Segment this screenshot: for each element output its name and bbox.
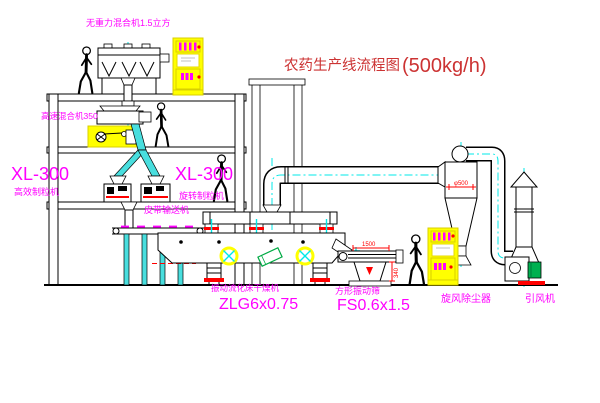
person-figure <box>79 47 92 93</box>
spring-mount <box>310 278 330 282</box>
cyclone-inlet <box>438 162 445 187</box>
fan-motor <box>528 262 541 278</box>
spring-mount <box>204 278 224 282</box>
label-high-speed-mixer: 高速混合机350 <box>41 111 98 121</box>
label-dryer-name: 振动流化床干燥机 <box>211 283 280 293</box>
label-cyclone: 旋风除尘器 <box>441 292 491 305</box>
indicator-dot <box>451 234 454 237</box>
label-sieve-model: FS0.6x1.5 <box>337 297 410 314</box>
person-figure <box>410 235 424 284</box>
control-cabinet-top <box>173 38 203 95</box>
cyclone-outlet-elbow <box>452 146 468 162</box>
dryer-hood <box>203 212 337 224</box>
fan-base <box>518 281 545 285</box>
page-title: 农药生产线流程图 <box>284 57 400 74</box>
granulator-right-drawing <box>141 184 170 202</box>
control-cabinet-right <box>428 228 458 285</box>
dim-cyclone-diameter: φ500 <box>454 181 469 187</box>
label-sieve-name: 方形振动筛 <box>335 285 380 296</box>
label-belt-conveyor: 皮带输送机 <box>144 204 189 215</box>
exhaust-stack-drawing <box>509 172 539 263</box>
vibrating-sieve-drawing <box>338 245 403 286</box>
granulator-left-drawing <box>104 184 131 202</box>
cabinet-panel <box>432 244 454 256</box>
dim-sieve-length: 1500 <box>362 242 376 248</box>
person-figure <box>156 103 169 146</box>
dim-sieve-height: 340 <box>394 267 400 278</box>
diagram-svg: 农药生产线流程图 (500kg/h) 无重力混合机1.5立方 高速混合机350 … <box>0 0 600 403</box>
stack-cap <box>511 172 537 187</box>
gravity-mixer-drawing <box>98 44 169 101</box>
induced-draft-fan-drawing <box>505 257 545 285</box>
label-gravity-mixer: 无重力混合机1.5立方 <box>86 17 171 28</box>
label-fan: 引风机 <box>525 292 555 305</box>
support-beam <box>249 79 305 85</box>
indicator-dot <box>449 265 452 268</box>
high-speed-mixer-drawing <box>88 101 151 150</box>
page-title-capacity: (500kg/h) <box>402 55 487 77</box>
mixer-discharge-pipe <box>124 85 132 101</box>
cabinet-panel <box>177 54 199 67</box>
label-granulator-right-name: 旋转制粒机 <box>179 190 224 201</box>
granulator-feed-chute <box>110 150 164 184</box>
dryer-exhaust-duct <box>263 166 439 219</box>
dryer-body <box>158 233 345 263</box>
flow-diagram: 农药生产线流程图 (500kg/h) 无重力混合机1.5立方 高速混合机350 … <box>0 0 600 403</box>
label-granulator-right-model: XL-300 <box>175 164 233 184</box>
label-dryer-model: ZLG6x0.75 <box>219 296 298 313</box>
indicator-dot <box>197 45 200 48</box>
label-granulator-left-model: XL-300 <box>11 164 69 184</box>
indicator-dot <box>197 75 200 78</box>
label-granulator-left-name: 高效制粒机 <box>14 186 59 197</box>
